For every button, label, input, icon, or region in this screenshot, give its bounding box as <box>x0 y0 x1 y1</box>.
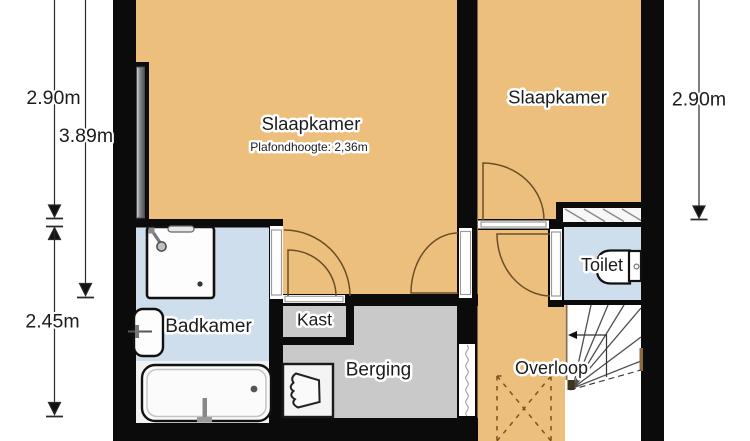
svg-text:3.89m: 3.89m <box>59 125 113 147</box>
svg-text:Kast: Kast <box>297 310 332 330</box>
svg-text:Plafondhoogte: 2,36m: Plafondhoogte: 2,36m <box>250 140 367 154</box>
svg-text:2.90m: 2.90m <box>672 89 726 111</box>
svg-text:Overloop: Overloop <box>515 358 588 378</box>
svg-text:Berging: Berging <box>346 360 412 381</box>
svg-text:2.90m: 2.90m <box>26 87 80 109</box>
svg-text:2.45m: 2.45m <box>25 311 79 333</box>
svg-text:Slaapkamer: Slaapkamer <box>508 87 607 108</box>
svg-text:Badkamer: Badkamer <box>165 316 252 337</box>
svg-text:Slaapkamer: Slaapkamer <box>262 113 361 134</box>
svg-text:Toilet: Toilet <box>581 255 623 275</box>
